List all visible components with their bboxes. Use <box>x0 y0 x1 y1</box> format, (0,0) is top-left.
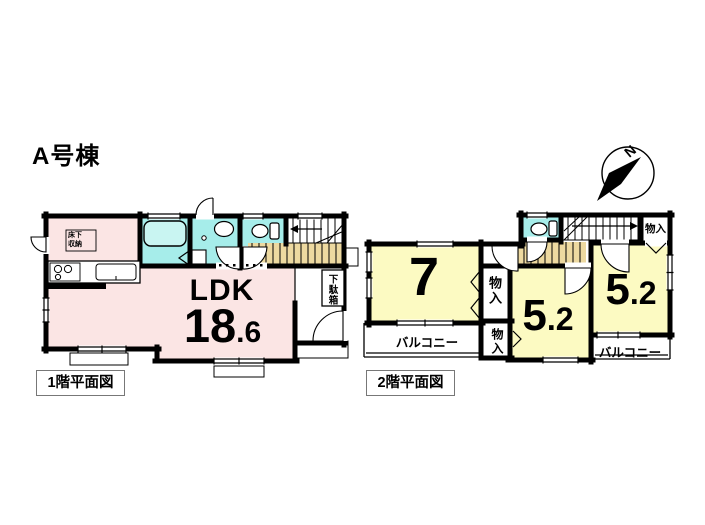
ldk-size-main: 18 <box>184 299 236 352</box>
balcony-right-label: バルコニー <box>586 342 674 361</box>
bathtub <box>144 221 186 246</box>
room52-center-main: 5 <box>522 291 546 340</box>
back-door-1f <box>196 198 214 220</box>
washing-machine <box>192 250 206 264</box>
kitchen-door-1f <box>31 237 50 254</box>
room52-center-frac: .2 <box>547 301 574 337</box>
floor2-caption: 2階平面図 <box>366 370 455 396</box>
shoe-cabinet-label: 下駄箱 <box>327 274 337 306</box>
window-room52c-bottom <box>543 357 578 364</box>
page-title: A号棟 <box>32 136 100 171</box>
room52-right-main: 5 <box>605 265 629 314</box>
window-room7-left-upper <box>366 252 373 272</box>
window-left-wall-1f <box>43 298 50 322</box>
floorplan-drawing <box>0 0 705 525</box>
room52-right-size: 5.2 <box>589 268 673 312</box>
under-floor-storage-label: 床下収納 <box>68 232 84 250</box>
window-bottom-left-1f <box>78 346 126 353</box>
floor1-caption: 1階平面図 <box>36 370 125 396</box>
closet-upper-label: 物入 <box>488 276 501 306</box>
entrance-door-1f <box>313 311 348 341</box>
closet-lower-label: 物入 <box>491 328 503 356</box>
room7-size: 7 <box>396 250 452 304</box>
balcony-left-label: バルコニー <box>381 332 473 351</box>
window-toilet-top-1f <box>243 213 263 220</box>
balcony-door-room52r <box>597 332 640 339</box>
ldk-size: 18.6 <box>150 302 295 349</box>
closet-top-right-label: 物入 <box>642 221 669 236</box>
window-toilet-top-2f <box>527 212 547 219</box>
terrace-right <box>214 366 264 377</box>
window-bath-top <box>148 213 180 220</box>
window-bottom-right-1f <box>214 358 264 365</box>
side-step <box>346 248 358 266</box>
washbasin <box>215 222 234 237</box>
compass <box>597 147 654 201</box>
window-room7-left-lower <box>366 278 373 298</box>
porch <box>297 345 348 358</box>
ldk-size-frac: .6 <box>236 316 261 349</box>
washbasin-drain <box>202 236 206 240</box>
room52-right-frac: .2 <box>630 275 657 311</box>
room52-center-size: 5.2 <box>506 294 590 338</box>
balcony-door-room7 <box>397 320 453 327</box>
terrace-left <box>70 353 128 365</box>
window-stairs-top-1f <box>298 213 322 220</box>
floorplan-page: A号棟 N LDK 18.6 床下収納 下駄箱 1階平面図 7 5.2 5.2 … <box>0 0 705 525</box>
